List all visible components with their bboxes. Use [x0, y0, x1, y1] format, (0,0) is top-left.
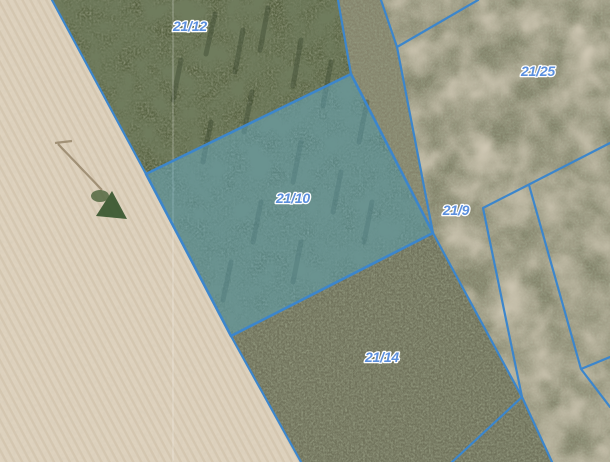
- parcel-label-21-25: 21/25: [520, 63, 555, 79]
- parcel-label-21-10: 21/10: [275, 190, 310, 206]
- map-viewport[interactable]: 21/12 21/25 21/10 21/9 21/14: [0, 0, 610, 462]
- parcel-label-21-12: 21/12: [172, 18, 207, 34]
- parcel-label-21-9: 21/9: [442, 202, 470, 218]
- field-bush-top: [91, 190, 109, 202]
- cadastral-map[interactable]: 21/12 21/25 21/10 21/9 21/14: [0, 0, 610, 462]
- parcel-label-21-14: 21/14: [364, 349, 399, 365]
